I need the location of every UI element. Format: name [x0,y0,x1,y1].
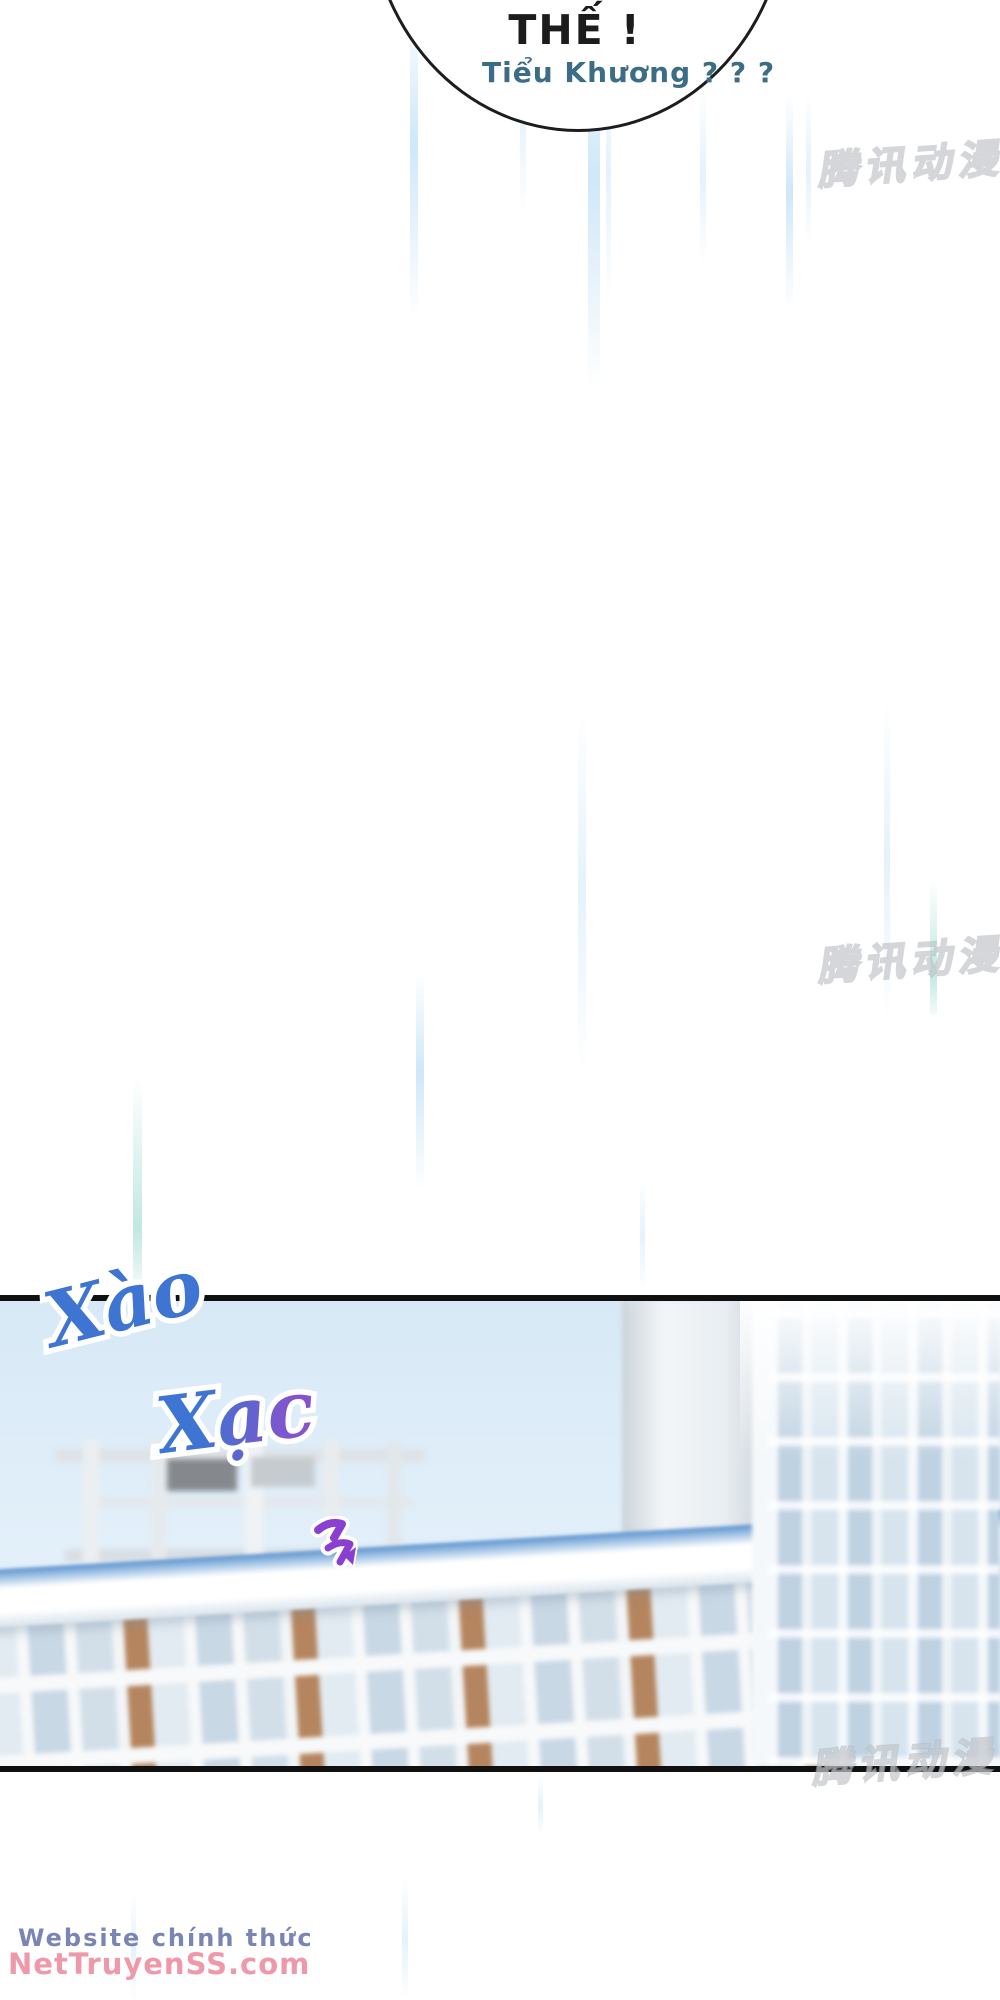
sfx-xac: Xạc Xạc [151,1363,319,1473]
building-panel [0,1295,1000,1772]
speed-line [538,1776,543,1836]
speed-line [402,1878,408,2000]
speed-line [640,1180,645,1292]
publisher-watermark-middle: 腾讯动漫 [817,922,1000,993]
sfx-xac-fill: Xạc [151,1363,319,1473]
speed-line [578,710,586,1070]
tower-highlight [740,1301,1000,1461]
comic-page: THẾ ! Tiểu Khương ? ? ? 腾讯动漫 腾讯动漫 腾讯动漫 [0,0,1000,2000]
site-watermark-line2: NetTruyenSS.com [8,1947,310,1981]
scaffold-panel [251,1457,315,1487]
speed-line [806,95,811,245]
speed-line [416,975,424,1190]
bubble-text-line2: Tiểu Khương ? ? ? [482,56,822,89]
zigzag-arrow-icon [310,1516,364,1576]
bubble-text-line1: THẾ ! [455,6,695,54]
scaffold-post [83,1439,99,1581]
publisher-watermark-building: 腾讯动漫 [811,1724,1000,1795]
speed-line [786,95,793,310]
publisher-watermark-top: 腾讯动漫 [817,126,1000,197]
speed-line [700,85,706,265]
